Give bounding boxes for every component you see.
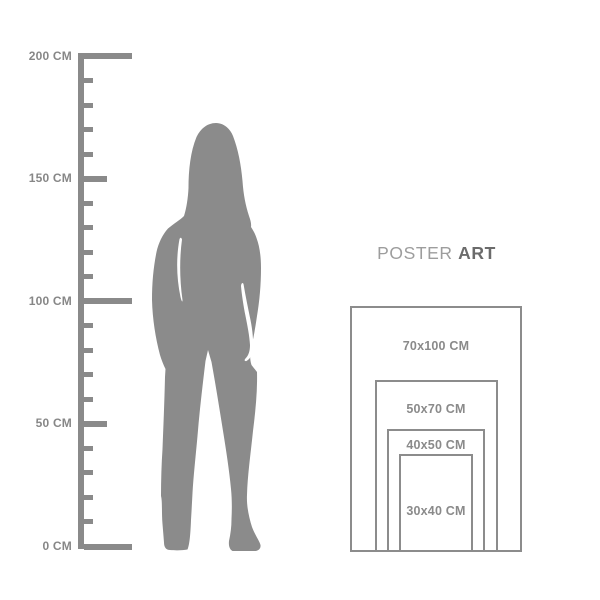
poster-size-rect-30x40: 30x40 CM [399,454,473,552]
poster-size-label-30x40: 30x40 CM [401,504,471,519]
size-guide-canvas: 200 CM150 CM100 CM50 CM0 CM POSTER ART 7… [0,0,600,600]
poster-size-label-40x50: 40x50 CM [389,438,483,453]
poster-size-diagram: 70x100 CM50x70 CM40x50 CM30x40 CM [0,0,600,600]
poster-size-label-70x100: 70x100 CM [352,339,520,354]
poster-size-label-50x70: 50x70 CM [377,402,496,417]
